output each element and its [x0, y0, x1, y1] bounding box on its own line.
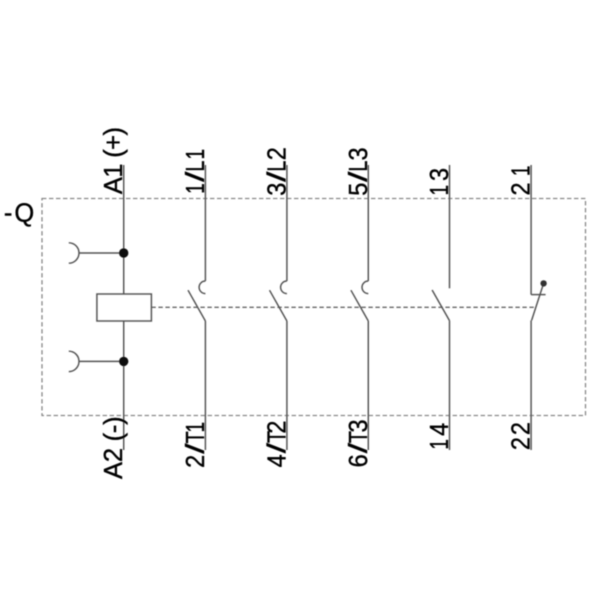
svg-text:2: 2: [264, 147, 292, 160]
svg-text:T: T: [180, 431, 209, 443]
svg-text:/: /: [181, 171, 210, 181]
svg-text:4: 4: [264, 454, 292, 467]
svg-text:L: L: [262, 161, 291, 172]
svg-text:2: 2: [508, 422, 536, 435]
svg-text:/: /: [262, 443, 291, 453]
svg-text:1: 1: [181, 149, 210, 159]
svg-text:/: /: [181, 443, 210, 453]
svg-text:2: 2: [264, 421, 292, 434]
svg-text:L: L: [180, 161, 209, 172]
svg-text:2: 2: [508, 182, 536, 195]
svg-text:2: 2: [508, 437, 536, 450]
svg-text:1: 1: [425, 185, 454, 195]
svg-text:/: /: [262, 171, 291, 181]
svg-text:3: 3: [426, 168, 454, 181]
svg-text:/: /: [343, 443, 372, 453]
svg-text:1: 1: [181, 422, 210, 432]
svg-text:6: 6: [345, 454, 373, 467]
svg-text:1: 1: [425, 439, 454, 449]
svg-text:1: 1: [181, 183, 210, 193]
svg-text:L: L: [343, 161, 372, 172]
svg-text:5: 5: [345, 183, 373, 196]
svg-text:3: 3: [264, 183, 292, 196]
svg-text:3: 3: [345, 147, 373, 160]
svg-text:/: /: [343, 171, 372, 181]
svg-text:A2 (-): A2 (-): [100, 416, 128, 479]
svg-text:3: 3: [345, 419, 373, 432]
svg-text:-Q: -Q: [4, 200, 34, 228]
svg-text:2: 2: [182, 455, 210, 468]
svg-text:1: 1: [507, 166, 536, 176]
svg-text:4: 4: [426, 423, 454, 436]
svg-text:A1 (+): A1 (+): [100, 127, 128, 194]
